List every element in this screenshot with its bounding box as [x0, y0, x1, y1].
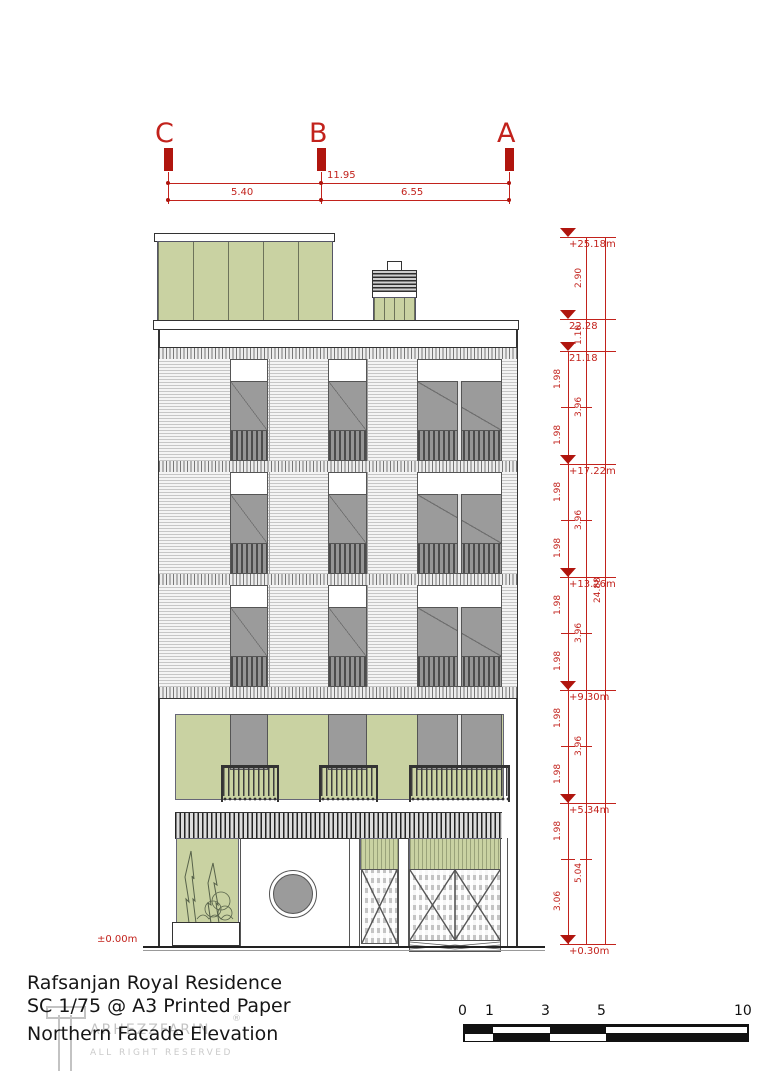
cladding-joint: [367, 472, 368, 574]
dim-chain-overall: [605, 237, 606, 944]
level-line: [560, 690, 616, 691]
balcony-railing: [409, 765, 510, 802]
dim-label-span-ba: 6.55: [401, 187, 423, 198]
window: [230, 585, 268, 687]
window-double: [417, 359, 502, 461]
wall-joint: [398, 838, 399, 946]
grid-bar-b: [317, 148, 326, 171]
level-label: +0.30m: [569, 946, 609, 957]
window: [328, 359, 367, 461]
window: [230, 472, 268, 574]
dim-story: 3.96: [574, 498, 584, 542]
dim-sub: 1.98: [553, 752, 563, 796]
scale-tick: 10: [734, 1003, 752, 1019]
cladding-joint: [269, 585, 270, 687]
dim-node: [507, 198, 511, 202]
cladding-joint: [269, 472, 270, 574]
level-line: [560, 577, 616, 578]
dim-sub: 1.98: [553, 809, 563, 853]
window-double: [417, 585, 502, 687]
planting-panel: [176, 838, 239, 925]
watermark-rights: ALL RIGHT RESERVED: [90, 1048, 233, 1058]
wall-joint: [507, 838, 508, 946]
dim-story: 3.96: [574, 724, 584, 768]
balcony-railing: [319, 765, 378, 802]
parapet-cap: [153, 320, 519, 330]
dim-sub: 1.98: [553, 357, 563, 401]
balcony-door-glass: [230, 714, 268, 770]
level-marker: [560, 228, 576, 237]
garage-gate: [409, 869, 501, 941]
balcony-door-glass: [328, 714, 367, 770]
wall-joint: [500, 838, 501, 946]
dim-node: [507, 181, 511, 185]
dim-sub: 1.98: [553, 583, 563, 627]
level-line: [560, 803, 616, 804]
scale-tick: 0: [458, 1003, 467, 1019]
ground-line: [143, 946, 545, 948]
level-label: +9.30m: [569, 692, 609, 703]
wall-joint: [349, 838, 350, 946]
dim-tick: [561, 407, 575, 408]
dim-story: 3.96: [574, 611, 584, 655]
project-title: Rafsanjan Royal Residence: [27, 972, 282, 994]
drawing-name: Northern Facade Elevation: [27, 1023, 278, 1045]
entry-canopy-louvers: [175, 812, 502, 839]
dim-label-total: 11.95: [327, 170, 356, 181]
dim-story: 5.04: [574, 851, 584, 895]
grid-marker-b: B: [309, 118, 328, 149]
scale-tick: 5: [597, 1003, 606, 1019]
scale-bar: [463, 1024, 749, 1042]
tower-panels: [373, 297, 416, 322]
porthole-window: [273, 874, 313, 914]
elevation-sheet: C B A 11.95 5.40 6.55: [0, 0, 783, 1080]
level-line: [560, 237, 616, 238]
balcony-railing: [221, 765, 279, 802]
grid-marker-c: C: [155, 118, 174, 149]
level-label: +5.34m: [569, 805, 609, 816]
scale-note: SC 1/75 @ A3 Printed Paper: [27, 995, 291, 1017]
grid-bar-a: [505, 148, 514, 171]
level-label: +17.22m: [569, 466, 616, 477]
ground-line-secondary: [143, 950, 545, 951]
dim-tick: [561, 520, 575, 521]
dim-story: 2.90: [574, 256, 584, 300]
level-line: [560, 464, 616, 465]
dim-story: 3.96: [574, 385, 584, 429]
dim-chain-sub: [568, 351, 569, 944]
door-transom-panel: [360, 838, 399, 870]
wall-joint: [240, 838, 241, 946]
scale-tick: 3: [541, 1003, 550, 1019]
level-line: [560, 319, 616, 320]
window-double: [417, 472, 502, 574]
dim-label-span-cb: 5.40: [231, 187, 253, 198]
roof-box-panels: [157, 241, 333, 323]
tree-drawing: [177, 839, 238, 924]
dim-sub: 1.98: [553, 639, 563, 683]
dimension-line-total: [168, 183, 510, 184]
balcony-door-glass-double: [417, 714, 502, 770]
tower-louvers: [372, 270, 417, 293]
dim-tick: [561, 859, 575, 860]
grid-bar-c: [164, 148, 173, 171]
dim-sub: 1.98: [553, 470, 563, 514]
level-line: [560, 351, 616, 352]
dimension-line-spans: [168, 200, 510, 201]
gate-transom-panel: [409, 838, 501, 870]
entrance-door: [361, 869, 398, 944]
window: [230, 359, 268, 461]
level-label: +25.18m: [569, 239, 616, 250]
scale-tick: 1: [485, 1003, 494, 1019]
window: [328, 585, 367, 687]
dim-node: [166, 198, 170, 202]
ground-level-label: ±0.00m: [97, 934, 137, 945]
cladding-joint: [367, 585, 368, 687]
planter-box: [172, 922, 240, 946]
dim-node: [166, 181, 170, 185]
dim-overall: 24.88: [593, 568, 603, 612]
dim-tick: [561, 633, 575, 634]
dim-tick: [561, 746, 575, 747]
dim-node: [319, 181, 323, 185]
grid-marker-a: A: [497, 118, 515, 149]
dim-sub: 1.98: [553, 696, 563, 740]
level-line: [560, 944, 616, 945]
dim-sub: 3.06: [553, 879, 563, 923]
slab-band: [159, 686, 517, 699]
cladding-joint: [269, 359, 270, 461]
dim-sub: 1.98: [553, 526, 563, 570]
level-marker: [560, 935, 576, 944]
cladding-joint: [367, 359, 368, 461]
dim-chain-story: [586, 237, 587, 944]
dim-node: [319, 198, 323, 202]
dim-story: 1.10: [574, 313, 584, 357]
window: [328, 472, 367, 574]
dim-sub: 1.98: [553, 413, 563, 457]
